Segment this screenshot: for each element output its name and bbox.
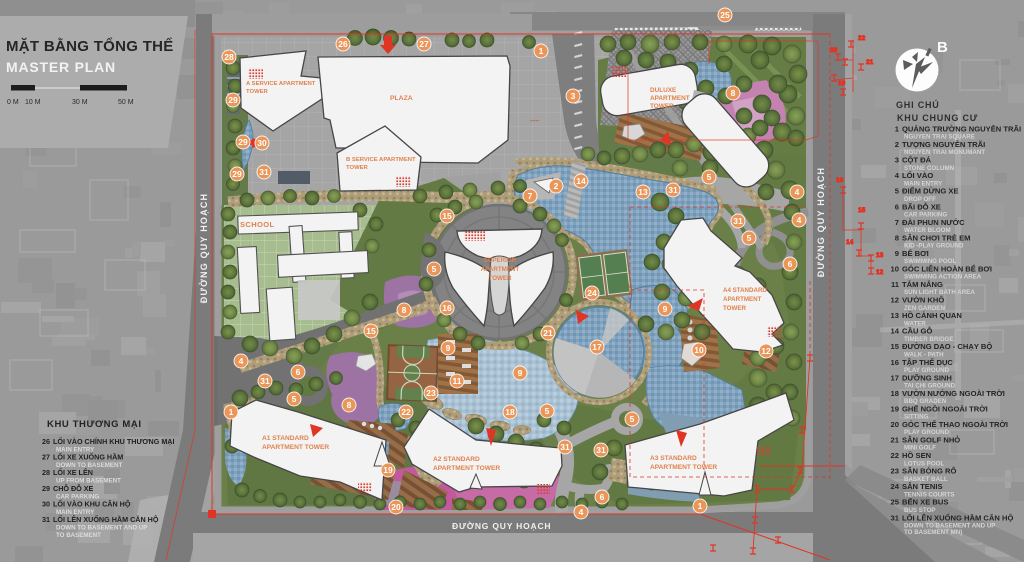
- svg-text:TẬP THỂ DỤC: TẬP THỂ DỤC: [902, 358, 953, 367]
- svg-text:LỐI VÀO CHÍNH KHU THƯƠNG MẠI: LỐI VÀO CHÍNH KHU THƯƠNG MẠI: [53, 436, 175, 446]
- svg-text:28: 28: [42, 468, 50, 477]
- svg-text:29: 29: [42, 484, 50, 493]
- svg-text:CẦU GỖ: CẦU GỖ: [902, 326, 932, 336]
- svg-text:17: 17: [891, 373, 899, 382]
- svg-text:5: 5: [292, 394, 297, 404]
- svg-text:LỐI LÊN XUỐNG HẦM CĂN HỘ: LỐI LÊN XUỐNG HẦM CĂN HỘ: [53, 514, 159, 524]
- svg-text:21: 21: [891, 436, 900, 445]
- svg-text:6: 6: [788, 259, 793, 269]
- svg-text:14: 14: [576, 176, 586, 186]
- svg-text:ĐƯỜNG QUY HOẠCH: ĐƯỜNG QUY HOẠCH: [452, 520, 551, 531]
- svg-text:12: 12: [891, 296, 899, 305]
- svg-text:28: 28: [224, 52, 234, 62]
- svg-text:31: 31: [260, 376, 270, 386]
- svg-text:10: 10: [694, 345, 704, 355]
- svg-text:19: 19: [838, 80, 846, 87]
- svg-text:5: 5: [545, 406, 550, 416]
- svg-text:SÂN TENIS: SÂN TENIS: [902, 482, 943, 491]
- svg-text:SÂN GOLF NHỎ: SÂN GOLF NHỎ: [902, 436, 960, 445]
- svg-text:GHI CHÚ: GHI CHÚ: [896, 99, 940, 110]
- svg-text:13: 13: [876, 252, 884, 259]
- svg-text:TẮM NẮNG: TẮM NẮNG: [902, 280, 943, 289]
- svg-text:14: 14: [891, 327, 900, 336]
- svg-text:19: 19: [891, 404, 899, 413]
- svg-text:9: 9: [663, 304, 668, 314]
- svg-text:0 M: 0 M: [7, 99, 19, 106]
- svg-text:LỐI XE XUỐNG HẦM: LỐI XE XUỐNG HẦM: [53, 452, 123, 462]
- svg-text:8: 8: [402, 305, 407, 315]
- svg-text:ĐƯỜNG QUY HOẠCH: ĐƯỜNG QUY HOẠCH: [815, 167, 826, 277]
- svg-text:5: 5: [432, 264, 437, 274]
- svg-text:31: 31: [596, 445, 606, 455]
- svg-text:7: 7: [895, 218, 899, 227]
- svg-text:25: 25: [720, 10, 730, 20]
- svg-text:25: 25: [891, 498, 900, 507]
- svg-text:6: 6: [600, 492, 605, 502]
- svg-text:31: 31: [560, 442, 570, 452]
- svg-text:2: 2: [554, 181, 559, 191]
- svg-text:23: 23: [891, 467, 899, 476]
- svg-text:31: 31: [259, 167, 269, 177]
- svg-text:21: 21: [866, 59, 874, 66]
- svg-text:QUẢNG TRƯỜNG NGUYỄN TRÃI: QUẢNG TRƯỜNG NGUYỄN TRÃI: [902, 125, 1021, 134]
- svg-text:9: 9: [446, 343, 451, 353]
- svg-text:22: 22: [891, 451, 899, 460]
- svg-text:9: 9: [518, 368, 523, 378]
- svg-text:CỘT ĐÁ: CỘT ĐÁ: [902, 156, 932, 165]
- svg-text:10: 10: [891, 265, 899, 274]
- svg-text:16: 16: [442, 303, 452, 313]
- svg-text:20: 20: [830, 47, 838, 54]
- svg-text:20: 20: [391, 502, 401, 512]
- svg-text:8: 8: [347, 400, 352, 410]
- svg-text:12: 12: [761, 346, 771, 356]
- svg-text:6: 6: [895, 202, 899, 211]
- svg-text:HỒ SEN: HỒ SEN: [902, 450, 931, 460]
- svg-text:15: 15: [858, 207, 866, 214]
- svg-text:ĐIỂM DỪNG XE: ĐIỂM DỪNG XE: [902, 187, 959, 196]
- svg-text:GHẾ NGỒI NGOÀI TRỜI: GHẾ NGỒI NGOÀI TRỜI: [902, 403, 988, 413]
- svg-text:18: 18: [505, 407, 515, 417]
- svg-text:5: 5: [707, 172, 712, 182]
- svg-text:26: 26: [42, 437, 50, 446]
- svg-text:29: 29: [232, 169, 242, 179]
- svg-text:8: 8: [895, 233, 899, 242]
- svg-text:3: 3: [571, 91, 576, 101]
- svg-text:LỐI LÊN XUỐNG HẦM CĂN HỘ: LỐI LÊN XUỐNG HẦM CĂN HỘ: [902, 512, 1013, 522]
- svg-text:KHU CHUNG CƯ: KHU CHUNG CƯ: [897, 113, 978, 123]
- svg-text:29: 29: [228, 95, 238, 105]
- svg-text:2: 2: [895, 140, 899, 149]
- svg-text:30: 30: [257, 138, 267, 148]
- svg-text:4: 4: [239, 356, 244, 366]
- svg-text:DOWN TO BASEMENT AND UP: DOWN TO BASEMENT AND UP: [56, 525, 147, 532]
- svg-text:15: 15: [442, 211, 452, 221]
- svg-text:8: 8: [731, 88, 736, 98]
- svg-text:TO BASEMENT MN): TO BASEMENT MN): [904, 529, 962, 536]
- svg-text:BẾN XE BUS: BẾN XE BUS: [902, 497, 948, 507]
- svg-text:17: 17: [592, 342, 602, 352]
- svg-text:20: 20: [891, 420, 899, 429]
- svg-text:LỐI VÀO KHU CĂN HỘ: LỐI VÀO KHU CĂN HỘ: [53, 498, 131, 508]
- svg-text:GÓC THỂ THAO NGOÀI TRỜI: GÓC THỂ THAO NGOÀI TRỜI: [902, 420, 1008, 429]
- svg-text:16: 16: [891, 358, 899, 367]
- svg-text:24: 24: [587, 288, 597, 298]
- svg-text:SÂN BÓNG RỔ: SÂN BÓNG RỔ: [902, 467, 957, 476]
- svg-text:31: 31: [42, 515, 50, 524]
- svg-text:SÂN CHƠI TRẺ EM: SÂN CHƠI TRẺ EM: [902, 233, 971, 242]
- svg-text:10 M: 10 M: [25, 99, 41, 106]
- svg-text:27: 27: [42, 453, 50, 462]
- svg-text:CHỖ ĐỖ XE: CHỖ ĐỖ XE: [53, 484, 94, 493]
- svg-text:30: 30: [42, 499, 50, 508]
- svg-text:24: 24: [891, 482, 900, 491]
- svg-text:23: 23: [426, 388, 436, 398]
- svg-text:50 M: 50 M: [118, 99, 134, 106]
- svg-text:21: 21: [543, 328, 553, 338]
- svg-text:31: 31: [891, 513, 900, 522]
- svg-text:HỒ CẢNH QUAN: HỒ CẢNH QUAN: [902, 310, 962, 320]
- svg-text:19: 19: [383, 465, 393, 475]
- svg-text:1: 1: [229, 407, 234, 417]
- svg-text:27: 27: [419, 39, 429, 49]
- svg-text:31: 31: [668, 185, 678, 195]
- svg-text:15: 15: [366, 326, 376, 336]
- svg-text:6: 6: [296, 367, 301, 377]
- svg-text:30 M: 30 M: [72, 99, 88, 106]
- svg-text:LỐI VÀO: LỐI VÀO: [902, 170, 933, 180]
- svg-text:MẶT BẰNG TỔNG THỂ: MẶT BẰNG TỔNG THỂ: [6, 37, 174, 55]
- svg-text:5: 5: [747, 233, 752, 243]
- svg-text:GÓC LIÊN HOÀN BỂ BƠI: GÓC LIÊN HOÀN BỂ BƠI: [902, 265, 992, 274]
- svg-text:VƯỜN NƯỚNG NGOÀI TRỜI: VƯỜN NƯỚNG NGOÀI TRỜI: [902, 389, 1005, 398]
- svg-text:KHU THƯƠNG MẠI: KHU THƯƠNG MẠI: [47, 419, 142, 430]
- svg-text:BÃI ĐỖ XE: BÃI ĐỖ XE: [902, 202, 941, 211]
- svg-text:13: 13: [638, 187, 648, 197]
- svg-text:1: 1: [698, 501, 703, 511]
- svg-text:26: 26: [338, 39, 348, 49]
- svg-text:LỐI XE LÊN: LỐI XE LÊN: [53, 467, 93, 477]
- svg-text:15: 15: [891, 342, 900, 351]
- svg-text:14: 14: [846, 239, 854, 246]
- svg-text:TO BASEMENT: TO BASEMENT: [56, 532, 101, 539]
- svg-text:13: 13: [891, 311, 899, 320]
- svg-text:ĐƯỜNG DẠO - CHẠY BỘ: ĐƯỜNG DẠO - CHẠY BỘ: [902, 342, 992, 351]
- svg-text:DƯỠNG SINH: DƯỠNG SINH: [902, 373, 952, 382]
- svg-text:29: 29: [238, 137, 248, 147]
- svg-text:7: 7: [528, 191, 533, 201]
- svg-text:VƯỜN KHÔ: VƯỜN KHÔ: [902, 296, 944, 305]
- svg-text:31: 31: [733, 216, 743, 226]
- svg-text:12: 12: [876, 269, 884, 276]
- svg-text:MASTER PLAN: MASTER PLAN: [6, 59, 116, 75]
- svg-text:4: 4: [797, 215, 802, 225]
- svg-text:22: 22: [858, 35, 866, 42]
- svg-text:1: 1: [539, 46, 544, 56]
- svg-text:16: 16: [836, 177, 844, 184]
- svg-text:4: 4: [579, 507, 584, 517]
- svg-text:ĐÀI PHUN NƯỚC: ĐÀI PHUN NƯỚC: [902, 218, 965, 227]
- svg-text:9: 9: [895, 249, 899, 258]
- svg-text:TƯỢNG NGUYỄN TRÃI: TƯỢNG NGUYỄN TRÃI: [902, 140, 985, 149]
- svg-text:ĐƯỜNG QUY HOẠCH: ĐƯỜNG QUY HOẠCH: [198, 193, 209, 303]
- svg-text:5: 5: [630, 414, 635, 424]
- svg-text:22: 22: [401, 407, 411, 417]
- svg-text:3: 3: [895, 156, 899, 165]
- svg-text:11: 11: [453, 376, 462, 386]
- svg-text:B: B: [937, 39, 948, 56]
- svg-text:BỂ BƠI: BỂ BƠI: [902, 249, 929, 258]
- svg-text:11: 11: [891, 280, 900, 289]
- svg-text:18: 18: [891, 389, 899, 398]
- svg-text:4: 4: [795, 187, 800, 197]
